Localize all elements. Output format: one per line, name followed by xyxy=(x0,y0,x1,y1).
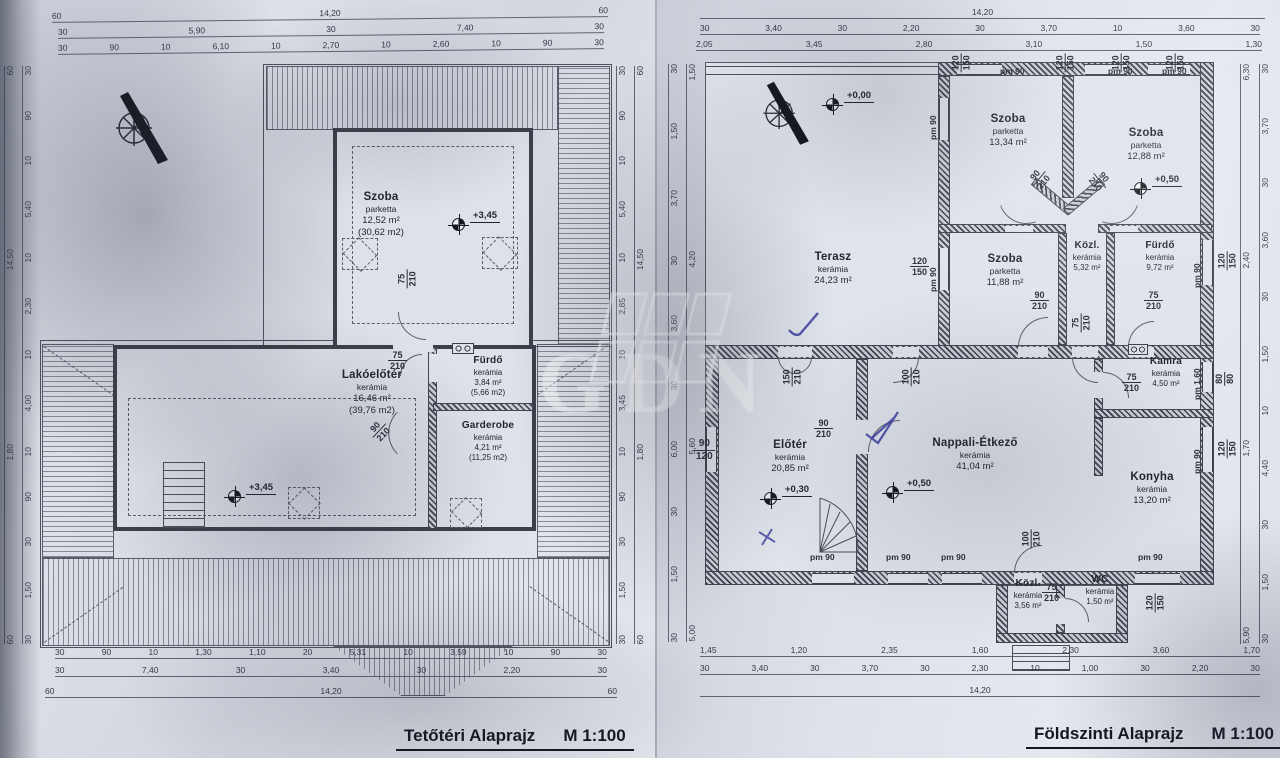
dim-col-ground-right-outer: 303,70303,60301,50104,40301,5030 xyxy=(1259,64,1270,644)
plan-scale: M 1:100 xyxy=(563,726,625,745)
parapet-label: pm 1,60 xyxy=(1192,368,1202,400)
room-name: Szoba xyxy=(1127,126,1165,140)
dim-value: 4,40 xyxy=(1261,460,1270,477)
dim-value: 3,40 xyxy=(765,24,782,33)
room-finish: kerámia xyxy=(1130,484,1173,495)
dim-value: 1,50 xyxy=(1261,346,1270,363)
parapet-label: pm 90 xyxy=(1000,66,1025,76)
door-height: 210 xyxy=(1032,529,1042,548)
room-label-terasz: Terasz kerámia 24,23 m² xyxy=(814,250,852,287)
dim-value: 90 xyxy=(618,111,627,120)
dim-value: 10 xyxy=(491,39,501,48)
dim-value: 1,30 xyxy=(195,648,212,657)
wall xyxy=(996,633,1128,643)
room-area: 12,88 m² xyxy=(1127,151,1165,163)
fixture-icon xyxy=(452,343,474,354)
wall xyxy=(1094,409,1214,418)
room-label-furdo-ground: Fürdő kerámia 9,72 m² xyxy=(1145,240,1174,273)
room-area: 4,21 m² xyxy=(462,443,514,453)
level-marker xyxy=(452,218,465,231)
north-arrow-icon xyxy=(108,90,178,170)
dim-value: 6,00 xyxy=(670,441,679,458)
window-height: 150 xyxy=(962,53,972,72)
room-name: WC xyxy=(1086,574,1114,587)
dim-value: 1,70 xyxy=(1243,646,1260,655)
room-label-szoba3: Szoba parketta 11,88 m² xyxy=(987,252,1024,289)
dim-value: 1,10 xyxy=(249,648,266,657)
dim-value: 30 xyxy=(975,24,984,33)
dim-value: 10 xyxy=(148,648,157,657)
room-label-szoba-attic: Szoba parketta 12,52 m² (30,62 m2) xyxy=(358,190,404,239)
dim-value: 20 xyxy=(303,648,312,657)
room-name: Fürdő xyxy=(471,355,505,368)
dim-value: 30 xyxy=(594,22,604,31)
dim-col-ground-right-inner: 6,302,401,705,90 xyxy=(1240,64,1251,644)
parapet-label: pm 90 xyxy=(1108,66,1133,76)
dim-value: 30 xyxy=(597,648,606,657)
door-opening xyxy=(893,347,919,357)
room-area: 20,85 m² xyxy=(771,463,809,475)
wall xyxy=(1062,76,1074,198)
window xyxy=(1202,240,1213,285)
dim-value: 10 xyxy=(618,156,627,165)
window-size-label: 90120 xyxy=(694,438,715,462)
dim-value: 30 xyxy=(1261,64,1270,73)
dim-row-attic-bottom1: 3090101,301,10205,31103,59109030 xyxy=(55,648,607,659)
dim-value: 60 xyxy=(608,687,617,696)
window xyxy=(1135,573,1180,584)
door-size-label: 100210 xyxy=(901,367,923,386)
window-size-label: 8080 xyxy=(1214,372,1236,386)
dim-value: 30 xyxy=(838,24,847,33)
door-height: 210 xyxy=(1082,313,1092,332)
room-name: Konyha xyxy=(1130,470,1173,484)
door-height: 210 xyxy=(1030,301,1049,311)
dim-value: 60 xyxy=(636,66,645,75)
door-width: 100 xyxy=(1021,529,1032,548)
window xyxy=(888,573,928,584)
attic-plan-title: Tetőtéri AlaprajzM 1:100 xyxy=(396,726,634,751)
dim-value: 10 xyxy=(381,40,391,49)
window xyxy=(812,573,854,584)
door-height: 210 xyxy=(793,367,803,386)
pen-cross-mark xyxy=(756,526,778,548)
scanned-floorplan-photo: 6014,2060 305,90307,4030 3090106,10102,7… xyxy=(0,0,1280,758)
parapet-label: pm 90 xyxy=(941,552,966,562)
dim-col-ground-left-outer: 301,503,70303,60306,00301,5030 xyxy=(668,64,679,642)
window xyxy=(942,573,982,584)
dim-row-ground-bottom1: 1,451,202,351,602,303,601,70 xyxy=(700,646,1260,657)
room-finish: kerámia xyxy=(1073,253,1101,263)
dim-value: 30 xyxy=(700,664,709,673)
dim-value: 30 xyxy=(1261,292,1270,301)
dim-value: 10 xyxy=(504,648,513,657)
door-opening xyxy=(778,347,812,357)
room-name: Szoba xyxy=(989,112,1027,126)
parapet-label: pm 90 xyxy=(1162,66,1187,76)
room-name: Közl. xyxy=(1073,240,1101,253)
room-area-gross: (11,25 m2) xyxy=(462,453,514,463)
room-area: 41,04 m² xyxy=(932,461,1017,473)
dim-value: 60 xyxy=(598,6,608,15)
dim-value: 14,50 xyxy=(636,249,645,270)
dim-value: 30 xyxy=(597,666,606,675)
parapet-label: pm 90 xyxy=(928,115,938,140)
room-finish: parketta xyxy=(1127,140,1165,151)
dim-value: 1,50 xyxy=(670,566,679,583)
room-name: Lakóelőtér xyxy=(342,368,402,382)
dim-col-attic-right-inner: 3090105,40102,85103,451090301,5030 xyxy=(616,66,627,644)
dim-value: 2,05 xyxy=(696,40,713,49)
dim-value: 2,80 xyxy=(916,40,933,49)
door-width: 90 xyxy=(1030,290,1049,301)
dim-value: 30 xyxy=(1140,664,1149,673)
window-size-label: 120150 xyxy=(1145,593,1167,612)
dim-value: 5,00 xyxy=(688,625,697,642)
window-width: 80 xyxy=(1214,372,1225,386)
room-name: Szoba xyxy=(987,252,1024,266)
dim-value: 2,30 xyxy=(1062,646,1079,655)
dim-value: 3,70 xyxy=(862,664,879,673)
room-name: Előtér xyxy=(771,438,809,452)
window xyxy=(1202,362,1213,392)
dim-value: 2,20 xyxy=(504,666,521,675)
dim-value: 5,40 xyxy=(618,201,627,218)
room-label-szoba2: Szoba parketta 12,88 m² xyxy=(1127,126,1165,163)
room-finish: kerámia xyxy=(471,368,505,378)
dim-value: 3,70 xyxy=(1261,118,1270,135)
window-size-label: 120150 xyxy=(1055,53,1077,72)
room-area-gross: (39,76 m2) xyxy=(342,405,402,417)
dim-col-attic-right-outer: 6014,501,8060 xyxy=(634,66,645,644)
dim-value: 10 xyxy=(618,447,627,456)
dim-value: 14,20 xyxy=(320,687,341,696)
door-size-label: 75210 xyxy=(397,269,419,288)
door-size-label: 90210 xyxy=(1030,290,1049,312)
room-label-furdo-attic: Fürdő kerámia 3,84 m² (5,66 m2) xyxy=(471,355,505,398)
dim-value: 30 xyxy=(670,633,679,642)
room-area: 9,72 m² xyxy=(1145,263,1174,273)
dim-value: 2,85 xyxy=(618,298,627,315)
dim-value: 3,60 xyxy=(1178,24,1195,33)
dim-value: 60 xyxy=(636,635,645,644)
dim-value: 30 xyxy=(1250,24,1259,33)
room-name: Nappali-Étkező xyxy=(932,436,1017,450)
room-finish: kerámia xyxy=(1150,369,1182,379)
window-width: 120 xyxy=(1055,53,1066,72)
wall xyxy=(1058,233,1067,345)
dim-value: 3,70 xyxy=(1040,24,1057,33)
window-height: 150 xyxy=(1228,251,1238,270)
dim-value: 30 xyxy=(670,64,679,73)
dim-value: 10 xyxy=(1030,664,1039,673)
dim-value: 90 xyxy=(551,648,560,657)
dim-value: 30 xyxy=(1261,178,1270,187)
door-height: 210 xyxy=(912,367,922,386)
room-label-kozl2: Közl. kerámia 3,56 m² xyxy=(1014,578,1042,611)
door-size-label: 75210 xyxy=(1144,290,1163,312)
door-width: 75 xyxy=(388,350,407,361)
window-width: 120 xyxy=(910,256,929,267)
dim-value: 3,60 xyxy=(1153,646,1170,655)
door-height: 210 xyxy=(1144,301,1163,311)
wall xyxy=(1200,62,1214,585)
dim-value: 60 xyxy=(52,12,62,21)
plan-title-text: Földszinti Alaprajz xyxy=(1034,724,1184,743)
dim-value: 30 xyxy=(55,666,64,675)
elevation-label: +0,50 xyxy=(904,478,934,491)
window-width: 120 xyxy=(1217,439,1228,458)
roof-overhang-line xyxy=(706,74,938,75)
door-opening xyxy=(1018,347,1048,357)
plan-scale: M 1:100 xyxy=(1212,724,1274,743)
door-opening xyxy=(1110,226,1138,232)
skylight xyxy=(450,498,482,528)
level-marker xyxy=(228,490,241,503)
door-width: 75 xyxy=(397,269,408,288)
dim-value: 30 xyxy=(670,381,679,390)
dim-value: 10 xyxy=(271,42,281,51)
dim-row-ground-top2: 303,40302,20303,70103,6030 xyxy=(700,24,1260,35)
dim-value: 30 xyxy=(58,28,68,37)
elevation-label: +0,50 xyxy=(1152,174,1182,187)
dim-value: 14,20 xyxy=(972,8,993,17)
dim-value: 90 xyxy=(618,492,627,501)
room-area: 5,32 m² xyxy=(1073,263,1101,273)
dim-row-attic-bottom2: 307,40303,40302,2030 xyxy=(55,666,607,677)
dim-value: 30 xyxy=(594,38,604,47)
dim-value: 6,10 xyxy=(212,42,229,51)
window xyxy=(939,98,949,140)
level-marker xyxy=(1134,182,1147,195)
window-size-label: 120150 xyxy=(1217,439,1239,458)
elevation-label: +3,45 xyxy=(470,210,500,223)
room-label-eloter: Előtér kerámia 20,85 m² xyxy=(771,438,809,475)
dim-value: 90 xyxy=(102,648,111,657)
door-height: 210 xyxy=(1042,593,1061,603)
pen-checkmark xyxy=(786,310,822,344)
dim-value: 2,60 xyxy=(433,40,450,49)
room-area: 3,84 m² xyxy=(471,378,505,388)
dim-value: 60 xyxy=(45,687,54,696)
door-opening xyxy=(429,354,437,382)
room-label-kamra: Kamra kerámia 4,50 m² xyxy=(1150,356,1182,389)
north-arrow-icon xyxy=(756,80,818,150)
room-name: Közl. xyxy=(1014,578,1042,591)
dim-value: 30 xyxy=(1250,664,1259,673)
dim-value: 10 xyxy=(618,253,627,262)
dim-value: 2,20 xyxy=(903,24,920,33)
door-width: 75 xyxy=(1042,582,1061,593)
dim-value: 7,40 xyxy=(457,24,474,33)
room-label-konyha: Konyha kerámia 13,20 m² xyxy=(1130,470,1173,507)
dim-value: 3,60 xyxy=(670,315,679,332)
door-width: 100 xyxy=(901,367,912,386)
dim-value: 30 xyxy=(1261,634,1270,643)
room-finish: kerámia xyxy=(1145,253,1174,263)
room-area: 3,56 m² xyxy=(1014,601,1042,611)
level-marker xyxy=(886,486,899,499)
dim-value: 30 xyxy=(810,664,819,673)
wall xyxy=(1106,233,1115,345)
room-area: 1,50 m² xyxy=(1086,597,1114,607)
elevation-label: +3,45 xyxy=(246,482,276,495)
dim-value: 30 xyxy=(55,648,64,657)
dim-value: 3,10 xyxy=(1026,40,1043,49)
dim-value: 1,00 xyxy=(1082,664,1099,673)
room-name: Garderobe xyxy=(462,420,514,433)
dim-value: 6,30 xyxy=(1242,64,1251,81)
level-marker xyxy=(826,98,839,111)
room-area-gross: (30,62 m2) xyxy=(358,227,404,239)
door-width: 75 xyxy=(1122,372,1141,383)
dim-value: 3,40 xyxy=(323,666,340,675)
dim-value: 1,50 xyxy=(1261,574,1270,591)
door-size-label: 90210 xyxy=(814,418,833,440)
window-height: 120 xyxy=(694,451,715,463)
parapet-label: pm 90 xyxy=(886,552,911,562)
room-area: 16,46 m² xyxy=(342,393,402,405)
dim-value: 1,50 xyxy=(670,123,679,140)
spiral-staircase xyxy=(816,496,860,554)
dim-value: 1,60 xyxy=(972,646,989,655)
room-name: Fürdő xyxy=(1145,240,1174,253)
dim-value: 2,70 xyxy=(323,41,340,50)
dim-value: 30 xyxy=(670,507,679,516)
skylight xyxy=(482,237,518,269)
room-finish: kerámia xyxy=(1086,587,1114,597)
door-height: 210 xyxy=(1122,383,1141,393)
room-area: 11,88 m² xyxy=(987,277,1024,289)
dim-value: 1,50 xyxy=(1136,40,1153,49)
window xyxy=(1202,427,1213,472)
room-area: 13,20 m² xyxy=(1130,495,1173,507)
window-size-label: 120150 xyxy=(910,256,929,278)
dim-value: 2,35 xyxy=(881,646,898,655)
dim-row-ground-bottom2: 303,40303,70302,30101,00302,2030 xyxy=(700,664,1260,675)
dim-row-ground-top3: 2,053,452,803,101,501,30 xyxy=(696,40,1262,51)
dim-value: 14,20 xyxy=(969,686,990,695)
room-label-nappali: Nappali-Étkező kerámia 41,04 m² xyxy=(932,436,1017,473)
door-size-label: 75210 xyxy=(1042,582,1061,604)
window-width: 90 xyxy=(694,438,715,451)
room-area: 12,52 m² xyxy=(358,215,404,227)
wall xyxy=(938,224,1066,233)
window xyxy=(939,248,949,290)
window-size-label: 120150 xyxy=(951,53,973,72)
dim-value: 10 xyxy=(1113,24,1122,33)
dim-value: 3,40 xyxy=(752,664,769,673)
room-label-kozl1: Közl. kerámia 5,32 m² xyxy=(1073,240,1101,273)
skylight xyxy=(342,238,378,270)
dim-row-ground-top1: 14,20 xyxy=(700,8,1265,19)
dim-value: 3,45 xyxy=(618,395,627,412)
skylight xyxy=(288,487,320,519)
room-name: Terasz xyxy=(814,250,852,264)
ground-plan-title: Földszinti AlaprajzM 1:100 xyxy=(1026,724,1280,749)
dim-value: 30 xyxy=(326,25,336,34)
dim-value: 30 xyxy=(236,666,245,675)
door-size-label: 150210 xyxy=(782,367,804,386)
level-marker xyxy=(764,492,777,505)
dim-col-ground-left-inner: 1,504,205,605,00 xyxy=(686,64,697,642)
elevation-label: +0,00 xyxy=(844,90,874,103)
fixture-icon xyxy=(1128,344,1148,355)
door-opening xyxy=(1005,226,1033,232)
dim-row-ground-bottom3: 14,20 xyxy=(700,686,1260,697)
dim-value: 2,20 xyxy=(1192,664,1209,673)
window-width: 120 xyxy=(1217,251,1228,270)
room-area: 4,50 m² xyxy=(1150,379,1182,389)
room-label-szoba1: Szoba parketta 13,34 m² xyxy=(989,112,1027,149)
wall xyxy=(433,403,533,411)
room-finish: parketta xyxy=(989,126,1027,137)
room-name: Szoba xyxy=(358,190,404,204)
window-height: 150 xyxy=(910,267,929,277)
parapet-label: pm 90 xyxy=(1138,552,1163,562)
dim-value: 30 xyxy=(700,24,709,33)
pen-checkmark xyxy=(860,406,904,448)
dim-value: 7,40 xyxy=(142,666,159,675)
dim-value: 10 xyxy=(403,648,412,657)
room-area: 13,34 m² xyxy=(989,137,1027,149)
dim-value: 3,45 xyxy=(806,40,823,49)
window-width: 120 xyxy=(1145,593,1156,612)
room-finish: kerámia xyxy=(814,264,852,275)
dim-value: 4,20 xyxy=(688,251,697,268)
room-area: 24,23 m² xyxy=(814,275,852,287)
dim-value: 1,45 xyxy=(700,646,717,655)
window-height: 150 xyxy=(1066,53,1076,72)
roof-overhang-line xyxy=(706,66,938,67)
dim-value: 30 xyxy=(618,635,627,644)
window-height: 150 xyxy=(1156,593,1166,612)
room-finish: kerámia xyxy=(932,450,1017,461)
door-width: 75 xyxy=(1071,313,1082,332)
dim-value: 14,20 xyxy=(319,9,340,18)
elevation-label: +0,30 xyxy=(782,484,812,497)
dim-value: 1,50 xyxy=(688,64,697,81)
plan-title-text: Tetőtéri Alaprajz xyxy=(404,726,535,745)
dim-value: 1,50 xyxy=(618,582,627,599)
window-width: 120 xyxy=(951,53,962,72)
room-finish: parketta xyxy=(987,266,1024,277)
dim-value: 1,80 xyxy=(636,444,645,461)
room-finish: parketta xyxy=(358,204,404,215)
door-width: 90 xyxy=(814,418,833,429)
dim-value: 30 xyxy=(618,537,627,546)
dim-value: 10 xyxy=(1261,406,1270,415)
room-area-gross: (5,66 m2) xyxy=(471,388,505,398)
dim-value: 3,59 xyxy=(450,648,467,657)
dim-value: 1,20 xyxy=(791,646,808,655)
door-size-label: 75210 xyxy=(1122,372,1141,394)
dim-value: 10 xyxy=(161,43,171,52)
dim-value: 1,30 xyxy=(1245,40,1262,49)
door-opening xyxy=(1072,347,1098,357)
room-finish: kerámia xyxy=(342,382,402,393)
dim-value: 5,31 xyxy=(350,648,367,657)
dim-value: 5,90 xyxy=(1242,627,1251,644)
window-height: 150 xyxy=(1228,439,1238,458)
room-finish: kerámia xyxy=(462,433,514,443)
dim-value: 30 xyxy=(920,664,929,673)
dim-value: 90 xyxy=(543,39,553,48)
parapet-label: pm 90 xyxy=(1192,449,1202,474)
door-size-label: 100210 xyxy=(1021,529,1043,548)
room-label-garderobe: Garderobe kerámia 4,21 m² (11,25 m2) xyxy=(462,420,514,463)
door-width: 150 xyxy=(782,367,793,386)
